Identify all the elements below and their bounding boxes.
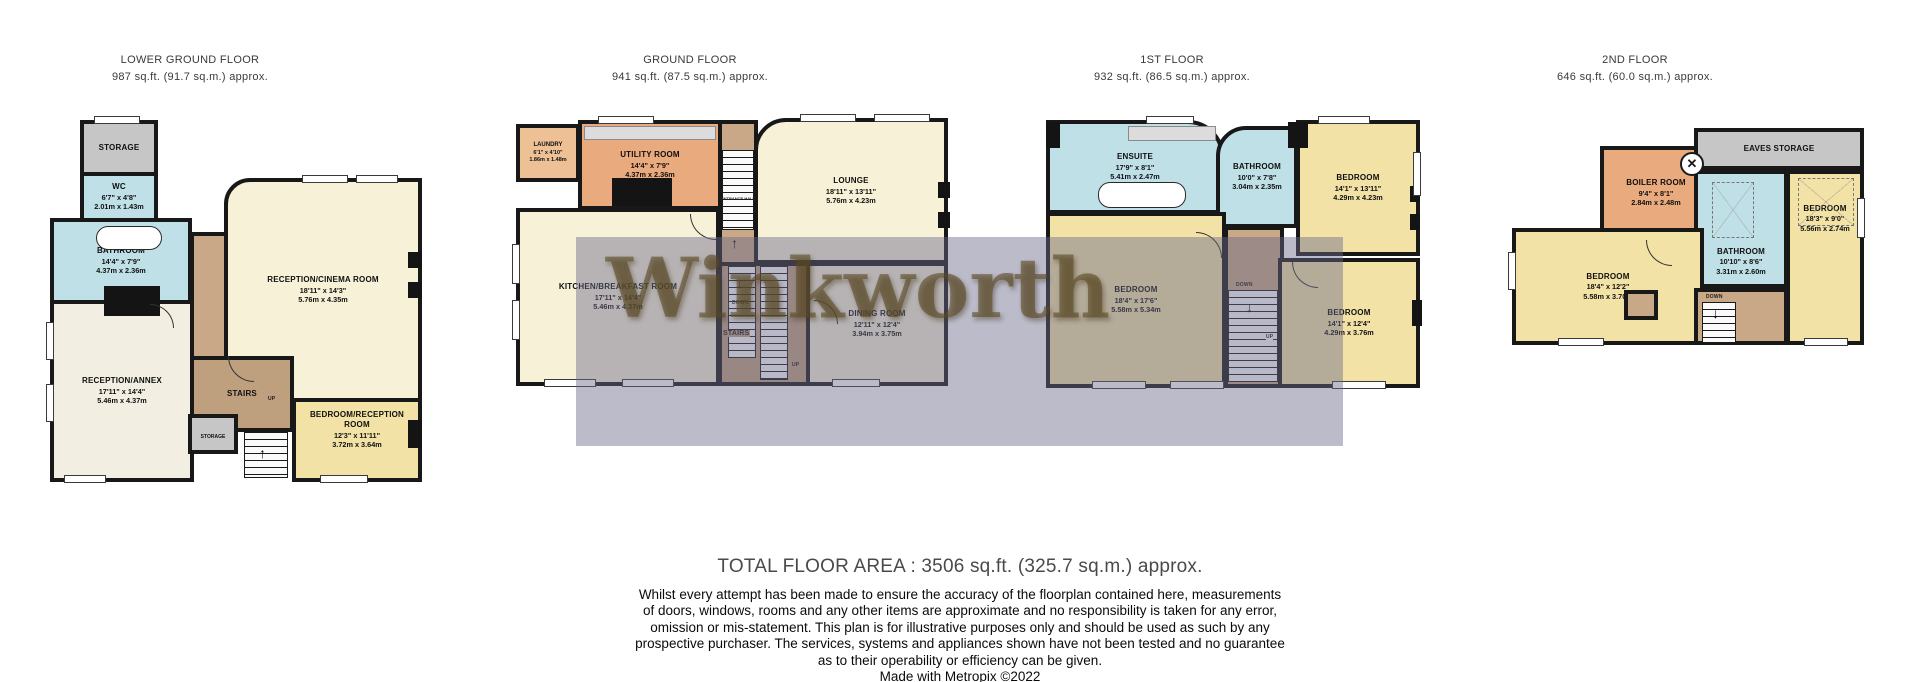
window bbox=[1413, 152, 1421, 196]
floorplan-canvas: LOWER GROUND FLOOR 987 sq.ft. (91.7 sq.m… bbox=[0, 0, 1920, 682]
room-dims-metric: 5.46m x 4.37m bbox=[559, 302, 677, 311]
room-label: BATHROOM bbox=[1232, 162, 1282, 172]
room-dims-imperial: 17'9" x 8'1" bbox=[1110, 163, 1160, 172]
room-dims-imperial: 17'11" x 14'4" bbox=[559, 293, 677, 302]
stairs-up-label: UP bbox=[1266, 334, 1273, 340]
room-dims-imperial: 18'11" x 13'11" bbox=[826, 187, 876, 196]
window bbox=[512, 244, 520, 284]
floor-name: 2ND FLOOR bbox=[1495, 52, 1775, 69]
room-label: RECEPTION/CINEMA ROOM bbox=[267, 275, 378, 285]
room-dims-metric: 3.94m x 3.75m bbox=[848, 329, 905, 338]
stairs-up-label: UP bbox=[268, 396, 275, 402]
stairs-up-label: UP bbox=[792, 362, 799, 368]
chimney-breast bbox=[408, 420, 422, 448]
floor-title-ground: GROUND FLOOR 941 sq.ft. (87.5 sq.m.) app… bbox=[550, 52, 830, 86]
room-bedroom-2f-left: BEDROOM 18'4" x 12'2" 5.58m x 3.70m bbox=[1512, 228, 1704, 345]
room-dims-imperial: 10'10" x 8'6" bbox=[1716, 257, 1766, 266]
floor-name: LOWER GROUND FLOOR bbox=[50, 52, 330, 69]
room-kitchen-breakfast: KITCHEN/BREAKFAST ROOM 17'11" x 14'4" 5.… bbox=[516, 208, 720, 386]
room-dims-imperial: 18'4" x 17'6" bbox=[1111, 296, 1161, 305]
room-dims-imperial: 12'3" x 11'11" bbox=[296, 431, 418, 440]
room-storage-under-stairs: STORAGE bbox=[188, 414, 238, 454]
room-label: UTILITY ROOM bbox=[620, 150, 680, 160]
room-storage-lgf: STORAGE bbox=[80, 120, 158, 176]
room-label: BEDROOM bbox=[1583, 272, 1633, 282]
room-eaves-storage: EAVES STORAGE bbox=[1694, 128, 1864, 170]
room-label: BATHROOM bbox=[1716, 247, 1766, 257]
floor-name: GROUND FLOOR bbox=[550, 52, 830, 69]
room-label: STORAGE bbox=[99, 143, 140, 153]
entrance-hall-label: ENTRANCE HALL bbox=[721, 196, 755, 201]
floor-name: 1ST FLOOR bbox=[1032, 52, 1312, 69]
eaves-slope-hatch bbox=[1712, 182, 1754, 238]
room-label: RECEPTION/ANNEX bbox=[82, 376, 162, 386]
room-dims-metric: 5.41m x 2.47m bbox=[1110, 172, 1160, 181]
window bbox=[302, 175, 348, 183]
room-dims-metric: 5.58m x 5.34m bbox=[1111, 305, 1161, 314]
room-wc-lgf: WC 6'7" x 4'8" 2.01m x 1.43m bbox=[80, 172, 158, 222]
room-dims-metric: 4.29m x 3.76m bbox=[1324, 328, 1374, 337]
room-label: BEDROOM bbox=[1324, 308, 1374, 318]
stairs-down-label: DOWN bbox=[1706, 294, 1723, 300]
room-dims-metric: 5.76m x 4.23m bbox=[826, 196, 876, 205]
staircase-treads-lgf bbox=[244, 432, 288, 478]
room-dims-imperial: 12'11" x 12'4" bbox=[848, 320, 905, 329]
up-arrow-icon: ↑ bbox=[731, 236, 738, 250]
bathtub-icon bbox=[96, 226, 162, 250]
room-lounge: LOUNGE 18'11" x 13'11" 5.76m x 4.23m bbox=[754, 118, 948, 264]
window bbox=[320, 475, 368, 483]
room-dims-imperial: 18'11" x 14'3" bbox=[267, 286, 378, 295]
room-label: STORAGE bbox=[201, 434, 226, 440]
window bbox=[1170, 381, 1224, 389]
cross-icon: ✕ bbox=[1687, 156, 1698, 172]
room-label: ENSUITE bbox=[1110, 152, 1160, 162]
room-laundry: LAUNDRY 6'1" x 4'10" 1.86m x 1.48m bbox=[516, 124, 580, 182]
window bbox=[832, 379, 880, 387]
room-label: WC bbox=[94, 182, 144, 192]
chimney-breast bbox=[1412, 300, 1422, 326]
room-dims-imperial: 9'4" x 8'1" bbox=[1626, 189, 1686, 198]
room-dims-imperial: 14'1" x 12'4" bbox=[1324, 319, 1374, 328]
down-arrow-icon: ↓ bbox=[736, 276, 743, 290]
floor-area: 941 sq.ft. (87.5 sq.m.) approx. bbox=[550, 69, 830, 86]
closet-2f bbox=[1624, 290, 1658, 320]
room-dims-metric: 4.29m x 4.23m bbox=[1333, 193, 1383, 202]
bathtub-icon bbox=[1098, 182, 1186, 208]
stairs-down-label: DOWN bbox=[732, 300, 749, 306]
room-dims-metric: 2.01m x 1.43m bbox=[94, 202, 144, 211]
total-floor-area: TOTAL FLOOR AREA : 3506 sq.ft. (325.7 sq… bbox=[0, 556, 1920, 578]
room-bedroom-reception: BEDROOM/RECEPTION ROOM 12'3" x 11'11" 3.… bbox=[292, 398, 422, 482]
room-label: DINING ROOM bbox=[848, 309, 905, 319]
stairs-down-label: DOWN bbox=[1236, 282, 1253, 288]
down-arrow-icon: ↓ bbox=[1246, 300, 1253, 314]
room-dims-imperial: 14'4" x 7'9" bbox=[96, 257, 146, 266]
chimney-breast bbox=[408, 252, 422, 268]
staircase-treads-gf-up bbox=[760, 266, 788, 380]
floor-title-lower-ground: LOWER GROUND FLOOR 987 sq.ft. (91.7 sq.m… bbox=[50, 52, 330, 86]
window bbox=[46, 322, 54, 360]
window bbox=[800, 114, 856, 122]
chimney-breast bbox=[408, 282, 422, 298]
room-label: BOILER ROOM bbox=[1626, 178, 1686, 188]
window bbox=[1318, 116, 1370, 124]
room-dims-metric: 5.46m x 4.37m bbox=[82, 396, 162, 405]
counter-top bbox=[584, 126, 716, 140]
room-dining: DINING ROOM 12'11" x 12'4" 3.94m x 3.75m bbox=[806, 262, 948, 386]
chimney-breast bbox=[938, 212, 950, 228]
room-bathroom-1f: BATHROOM 10'0" x 7'8" 3.04m x 2.35m bbox=[1216, 126, 1298, 228]
room-dims-imperial: 14'4" x 7'9" bbox=[620, 161, 680, 170]
room-dims-metric: 4.37m x 2.36m bbox=[96, 266, 146, 275]
room-label: BEDROOM bbox=[1111, 285, 1161, 295]
stairs-label-gf: STAIRS bbox=[722, 330, 750, 337]
eaves-slope-hatch bbox=[1798, 178, 1854, 226]
window bbox=[356, 175, 398, 183]
window bbox=[598, 116, 654, 124]
metropix-credit: Made with Metropix ©2022 bbox=[0, 669, 1920, 682]
disclaimer-text: Whilst every attempt has been made to en… bbox=[0, 587, 1920, 669]
room-dims-imperial: 17'11" x 14'4" bbox=[82, 387, 162, 396]
room-label: STAIRS bbox=[227, 389, 257, 399]
window bbox=[1508, 252, 1516, 290]
chimney-breast bbox=[938, 182, 950, 198]
floor-title-second: 2ND FLOOR 646 sq.ft. (60.0 sq.m.) approx… bbox=[1495, 52, 1775, 86]
room-dims-metric: 3.72m x 3.64m bbox=[296, 440, 418, 449]
floor-title-first: 1ST FLOOR 932 sq.ft. (86.5 sq.m.) approx… bbox=[1032, 52, 1312, 86]
window bbox=[1092, 381, 1146, 389]
chimney-breast bbox=[1288, 122, 1308, 148]
room-label: EAVES STORAGE bbox=[1744, 144, 1815, 154]
floor-area: 932 sq.ft. (86.5 sq.m.) approx. bbox=[1032, 69, 1312, 86]
window bbox=[622, 379, 674, 387]
room-dims-metric: 5.76m x 4.35m bbox=[267, 295, 378, 304]
window bbox=[64, 475, 106, 483]
window bbox=[94, 116, 140, 124]
room-dims-imperial: 6'7" x 4'8" bbox=[94, 193, 144, 202]
chimney-breast bbox=[1046, 122, 1060, 148]
footer: TOTAL FLOOR AREA : 3506 sq.ft. (325.7 sq… bbox=[0, 556, 1920, 682]
window bbox=[512, 300, 520, 340]
window bbox=[1332, 381, 1386, 389]
up-arrow-icon: ↑ bbox=[259, 446, 266, 460]
room-label: BEDROOM/RECEPTION ROOM bbox=[296, 410, 418, 431]
window bbox=[1146, 116, 1194, 124]
chimney-breast bbox=[612, 178, 672, 206]
chimney-breast bbox=[1410, 214, 1420, 230]
window bbox=[1558, 338, 1604, 346]
staircase-treads-2f bbox=[1702, 302, 1736, 343]
floor-area: 987 sq.ft. (91.7 sq.m.) approx. bbox=[50, 69, 330, 86]
room-dims-imperial: 14'1" x 13'11" bbox=[1333, 184, 1383, 193]
window bbox=[46, 384, 54, 422]
window bbox=[1857, 198, 1865, 238]
water-cylinder-icon: ✕ bbox=[1680, 152, 1704, 176]
window bbox=[544, 379, 596, 387]
window bbox=[874, 114, 930, 122]
room-label: LAUNDRY bbox=[529, 142, 566, 150]
room-dims-imperial: 6'1" x 4'10" bbox=[529, 150, 566, 157]
room-dims-metric: 2.84m x 2.48m bbox=[1626, 198, 1686, 207]
room-label: KITCHEN/BREAKFAST ROOM bbox=[559, 282, 677, 292]
floor-area: 646 sq.ft. (60.0 sq.m.) approx. bbox=[1495, 69, 1775, 86]
room-label: LOUNGE bbox=[826, 176, 876, 186]
room-label: BEDROOM bbox=[1333, 173, 1383, 183]
room-dims-metric: 3.31m x 2.60m bbox=[1716, 267, 1766, 276]
down-arrow-icon: ↓ bbox=[1712, 306, 1719, 320]
room-dims-metric: 3.04m x 2.35m bbox=[1232, 182, 1282, 191]
room-bedroom-1f-top: BEDROOM 14'1" x 13'11" 4.29m x 4.23m bbox=[1296, 120, 1420, 256]
counter-top bbox=[1128, 126, 1216, 141]
staircase-treads-entrance bbox=[722, 150, 754, 230]
room-dims-metric: 1.86m x 1.48m bbox=[529, 157, 566, 164]
room-dims-imperial: 10'0" x 7'8" bbox=[1232, 173, 1282, 182]
window bbox=[1804, 338, 1848, 346]
